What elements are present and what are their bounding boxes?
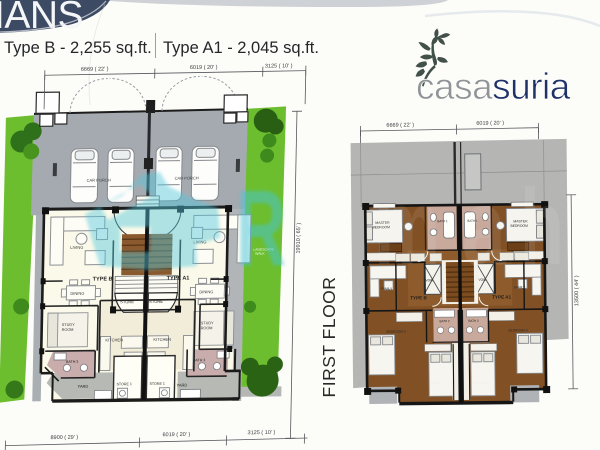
svg-text:ROOM: ROOM: [62, 328, 74, 332]
svg-text:KITCHEN: KITCHEN: [105, 337, 123, 342]
svg-text:YARD: YARD: [176, 382, 187, 387]
svg-text:LIVING: LIVING: [70, 245, 83, 250]
svg-text:YARD: YARD: [77, 384, 88, 389]
svg-text:ROOM 2: ROOM 2: [430, 381, 443, 385]
svg-text:BEDROOM: BEDROOM: [473, 381, 490, 385]
svg-text:6019 ( 20' ): 6019 ( 20' ): [162, 432, 190, 438]
svg-text:BATH 3: BATH 3: [66, 360, 78, 364]
svg-text:ROOM: ROOM: [201, 326, 213, 330]
svg-text:TYPE B: TYPE B: [93, 276, 113, 282]
svg-text:BEDROOM 3: BEDROOM 3: [509, 328, 528, 332]
svg-text:m: m: [374, 166, 440, 287]
svg-text:8900 ( 29' ): 8900 ( 29' ): [50, 435, 78, 441]
svg-text:3125 ( 10' ): 3125 ( 10' ): [247, 430, 275, 436]
svg-text:DINING: DINING: [199, 289, 213, 294]
svg-text:BATH 2: BATH 2: [439, 319, 450, 323]
svg-text:R: R: [236, 167, 286, 288]
svg-text:h: h: [520, 166, 564, 287]
svg-text:STORE 1: STORE 1: [117, 382, 132, 386]
svg-text:DINING: DINING: [70, 291, 84, 296]
svg-text:FAMILY: FAMILY: [381, 287, 393, 291]
svg-text:Type A1 - 2,045 sq.ft.: Type A1 - 2,045 sq.ft.: [163, 39, 319, 57]
svg-text:STUDY: STUDY: [62, 323, 75, 327]
svg-text:u: u: [298, 166, 342, 287]
svg-text:CAR PORCH: CAR PORCH: [175, 175, 199, 180]
svg-text:13500 ( 44' ): 13500 ( 44' ): [574, 275, 580, 306]
svg-text:6669 ( 22' ): 6669 ( 22' ): [81, 67, 109, 73]
svg-text:6669 ( 22' ): 6669 ( 22' ): [386, 122, 414, 128]
svg-text:3125 ( 10' ): 3125 ( 10' ): [265, 63, 293, 69]
svg-text:a: a: [462, 166, 507, 287]
svg-text:Type B - 2,255 sq.ft.: Type B - 2,255 sq.ft.: [4, 39, 152, 57]
svg-text:KITCHEN: KITCHEN: [153, 337, 171, 342]
svg-text:6019 ( 20' ): 6019 ( 20' ): [476, 121, 504, 127]
svg-text:casasuria: casasuria: [416, 66, 571, 107]
svg-text:BEDROOM 3: BEDROOM 3: [387, 330, 406, 334]
svg-text:FIRST FLOOR: FIRST FLOOR: [319, 277, 339, 398]
svg-text:TYPE A1: TYPE A1: [167, 275, 190, 281]
svg-text:TYPE A1: TYPE A1: [492, 294, 511, 299]
svg-text:CAR PORCH: CAR PORCH: [87, 177, 111, 182]
svg-text:STORE 1: STORE 1: [150, 382, 165, 386]
svg-text:TYPE B: TYPE B: [410, 295, 427, 300]
svg-text:STUDY: STUDY: [201, 321, 214, 325]
svg-text:BATH 2: BATH 2: [468, 319, 479, 323]
svg-text:6019 ( 20' ): 6019 ( 20' ): [190, 65, 218, 71]
